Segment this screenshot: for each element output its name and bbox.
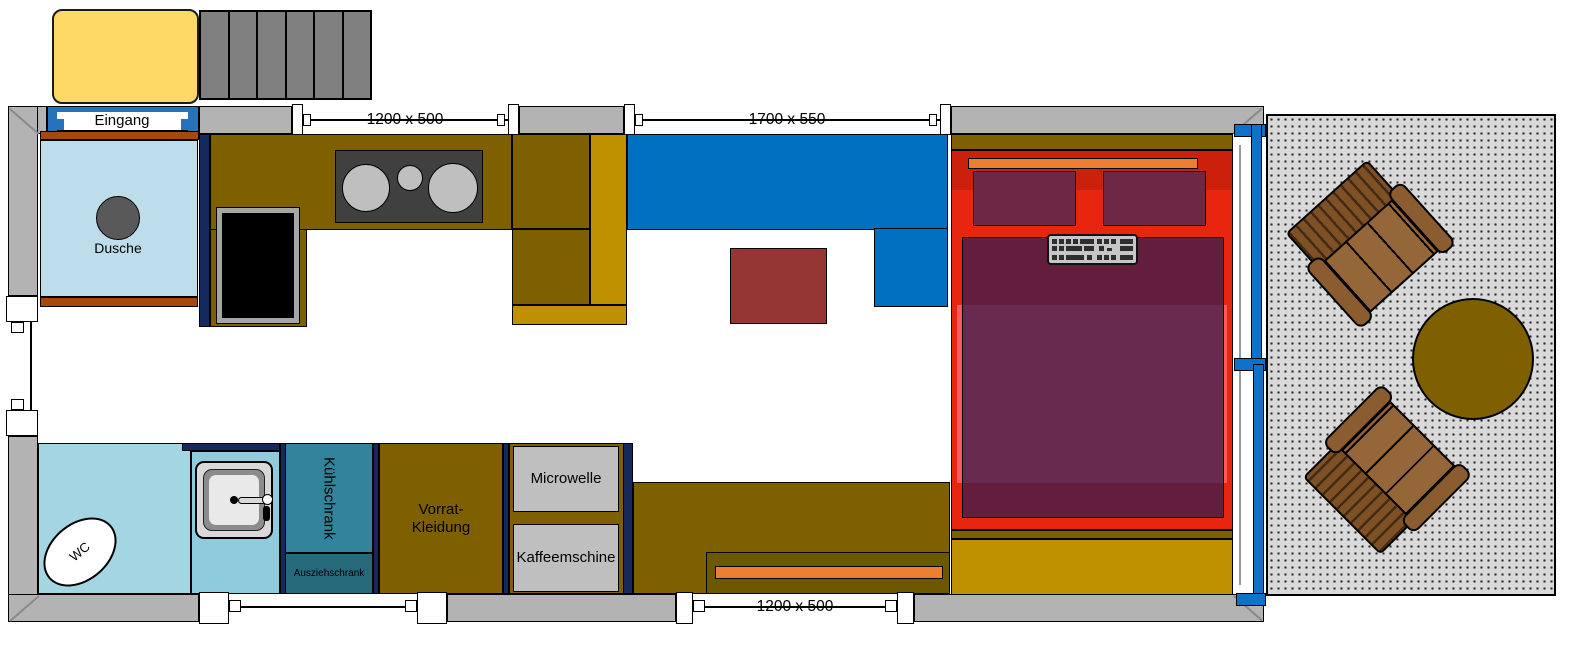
terrace-door-bracket (1236, 593, 1266, 606)
window-left-tab (11, 399, 24, 410)
keyboard-icon[interactable] (1047, 234, 1138, 265)
window-left-post[interactable] (6, 410, 38, 436)
window-desk-post[interactable] (897, 592, 914, 624)
sofa-extension[interactable] (874, 228, 948, 307)
window-desk-post[interactable] (676, 592, 693, 624)
pillow-left (973, 171, 1076, 226)
stair-step (201, 12, 230, 98)
window-living-tab (635, 114, 643, 126)
bed-blanket (962, 237, 1224, 518)
window-desk-dimension: 1200 x 500 (730, 598, 860, 616)
sofa[interactable] (627, 134, 948, 230)
floorplan-canvas: Dusche (0, 0, 1569, 652)
wall-left-top (8, 106, 38, 296)
wall-bottom-c (914, 594, 1264, 622)
stove-icon[interactable] (335, 150, 483, 223)
window-bath-post[interactable] (417, 592, 447, 624)
entrance-door-stop (181, 119, 188, 130)
fridge-label: Kühlschrank (320, 457, 337, 540)
coffee-table[interactable] (730, 248, 827, 324)
pullout-cabinet-label: Ausziehschrank (294, 568, 365, 580)
sink-drain-icon (230, 496, 238, 504)
tall-cabinet[interactable] (512, 134, 590, 305)
fridge[interactable]: Kühlschrank (285, 443, 373, 553)
window-left-dimline (30, 322, 32, 410)
burner-right-icon (428, 163, 478, 213)
kitchen-divider-trim (199, 134, 210, 327)
cabinet-trim-3 (623, 443, 633, 594)
shower-drain-icon (96, 196, 140, 240)
wall-top-b (199, 106, 292, 134)
wall-bottom-b (447, 594, 676, 622)
window-kitchen-tab (497, 114, 505, 126)
entrance-label: Eingang (62, 112, 182, 129)
bed-shelf-bar (968, 158, 1198, 169)
coffee-machine[interactable]: Kaffeemschine (513, 524, 619, 592)
window-living-post[interactable] (624, 104, 635, 135)
window-living-dimension: 1700 x 550 (722, 111, 852, 129)
pillow-right (1103, 171, 1206, 226)
shower-label: Dusche (58, 240, 178, 256)
terrace-deck (1266, 114, 1556, 596)
storage-cabinet[interactable]: Vorrat- Kleidung (379, 443, 503, 594)
oven-icon[interactable] (216, 207, 300, 324)
sink-counter-trim-top (182, 443, 280, 451)
window-bath-dimline (241, 606, 405, 608)
storage-label-line2: Kleidung (412, 519, 470, 536)
wall-top-c (519, 106, 624, 134)
terrace-door-panel-top[interactable] (1251, 124, 1262, 370)
burner-left-icon (342, 164, 390, 212)
terrace-table[interactable] (1412, 298, 1534, 420)
window-left-post[interactable] (6, 296, 38, 322)
entrance-sill (40, 131, 199, 140)
tall-cabinet-side (590, 134, 627, 305)
sideboard-handle (715, 566, 943, 579)
wall-top-d (951, 106, 1264, 134)
oven-glass (222, 213, 294, 318)
tall-cabinet-base (512, 305, 627, 325)
entrance-porch[interactable] (52, 9, 199, 104)
bed-foot-trim (951, 530, 1233, 539)
window-kitchen-dimension: 1200 x 500 (340, 111, 470, 129)
bed-bench[interactable] (951, 539, 1233, 595)
entrance-stairs[interactable] (199, 10, 372, 100)
window-desk-tab (885, 600, 897, 612)
bed-head-shelf (951, 134, 1233, 150)
burner-small-icon (397, 165, 423, 191)
deck-chair-top[interactable] (1284, 160, 1446, 323)
tall-cabinet-shelf-line (512, 228, 590, 230)
stair-step (258, 12, 287, 98)
window-living-post[interactable] (940, 104, 951, 135)
faucet-lever-icon (263, 506, 270, 521)
shower-sill-bottom (40, 297, 198, 307)
window-kitchen-post[interactable] (292, 104, 303, 135)
stair-step (287, 12, 316, 98)
stair-step (315, 12, 344, 98)
window-kitchen-tab (303, 114, 311, 126)
coffee-machine-label: Kaffeemschine (517, 549, 616, 566)
sink-icon[interactable] (195, 461, 273, 539)
terrace-door-panel-bottom[interactable] (1253, 364, 1264, 606)
window-living-tab (929, 114, 937, 126)
microwave[interactable]: Microwelle (513, 446, 619, 512)
stair-step (230, 12, 259, 98)
storage-label-line1: Vorrat- (418, 501, 463, 518)
wc-label: WC (67, 539, 93, 564)
stair-step (344, 12, 371, 98)
faucet-knob-icon (262, 494, 273, 505)
deck-chair-bottom[interactable] (1303, 394, 1466, 557)
window-desk-tab (693, 600, 705, 612)
window-kitchen-post[interactable] (508, 104, 519, 135)
window-bath-post[interactable] (199, 592, 229, 624)
window-bath-tab (405, 600, 417, 612)
pullout-cabinet[interactable]: Ausziehschrank (285, 553, 373, 594)
microwave-label: Microwelle (531, 470, 602, 487)
window-bath-tab (229, 600, 241, 612)
window-left-tab (11, 322, 24, 333)
